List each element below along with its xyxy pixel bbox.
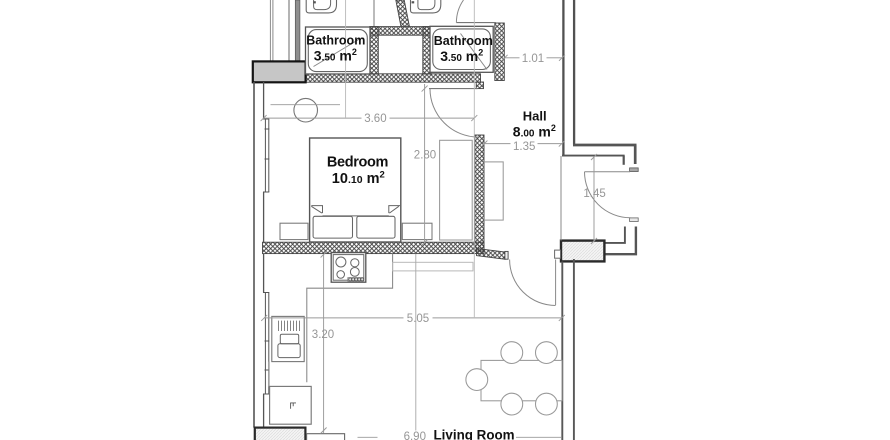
svg-text:6.90: 6.90: [404, 431, 426, 440]
svg-text:1.45: 1.45: [583, 188, 605, 200]
svg-text:2.80: 2.80: [414, 150, 436, 162]
svg-text:Bathroom: Bathroom: [434, 34, 493, 48]
svg-text:5.05: 5.05: [407, 313, 429, 325]
svg-text:3.50 m2: 3.50 m2: [440, 47, 483, 64]
svg-text:Hall: Hall: [523, 109, 547, 124]
svg-text:3.50 m2: 3.50 m2: [314, 47, 357, 64]
svg-text:3.20: 3.20: [312, 329, 334, 341]
svg-text:Living Room: Living Room: [434, 428, 515, 440]
svg-text:8.00 m2: 8.00 m2: [513, 123, 556, 140]
svg-text:Bedroom: Bedroom: [327, 154, 388, 170]
svg-text:1.01: 1.01: [522, 53, 544, 65]
svg-text:3.60: 3.60: [364, 113, 386, 125]
svg-text:Bathroom: Bathroom: [306, 34, 365, 48]
svg-text:1.35: 1.35: [513, 141, 535, 153]
